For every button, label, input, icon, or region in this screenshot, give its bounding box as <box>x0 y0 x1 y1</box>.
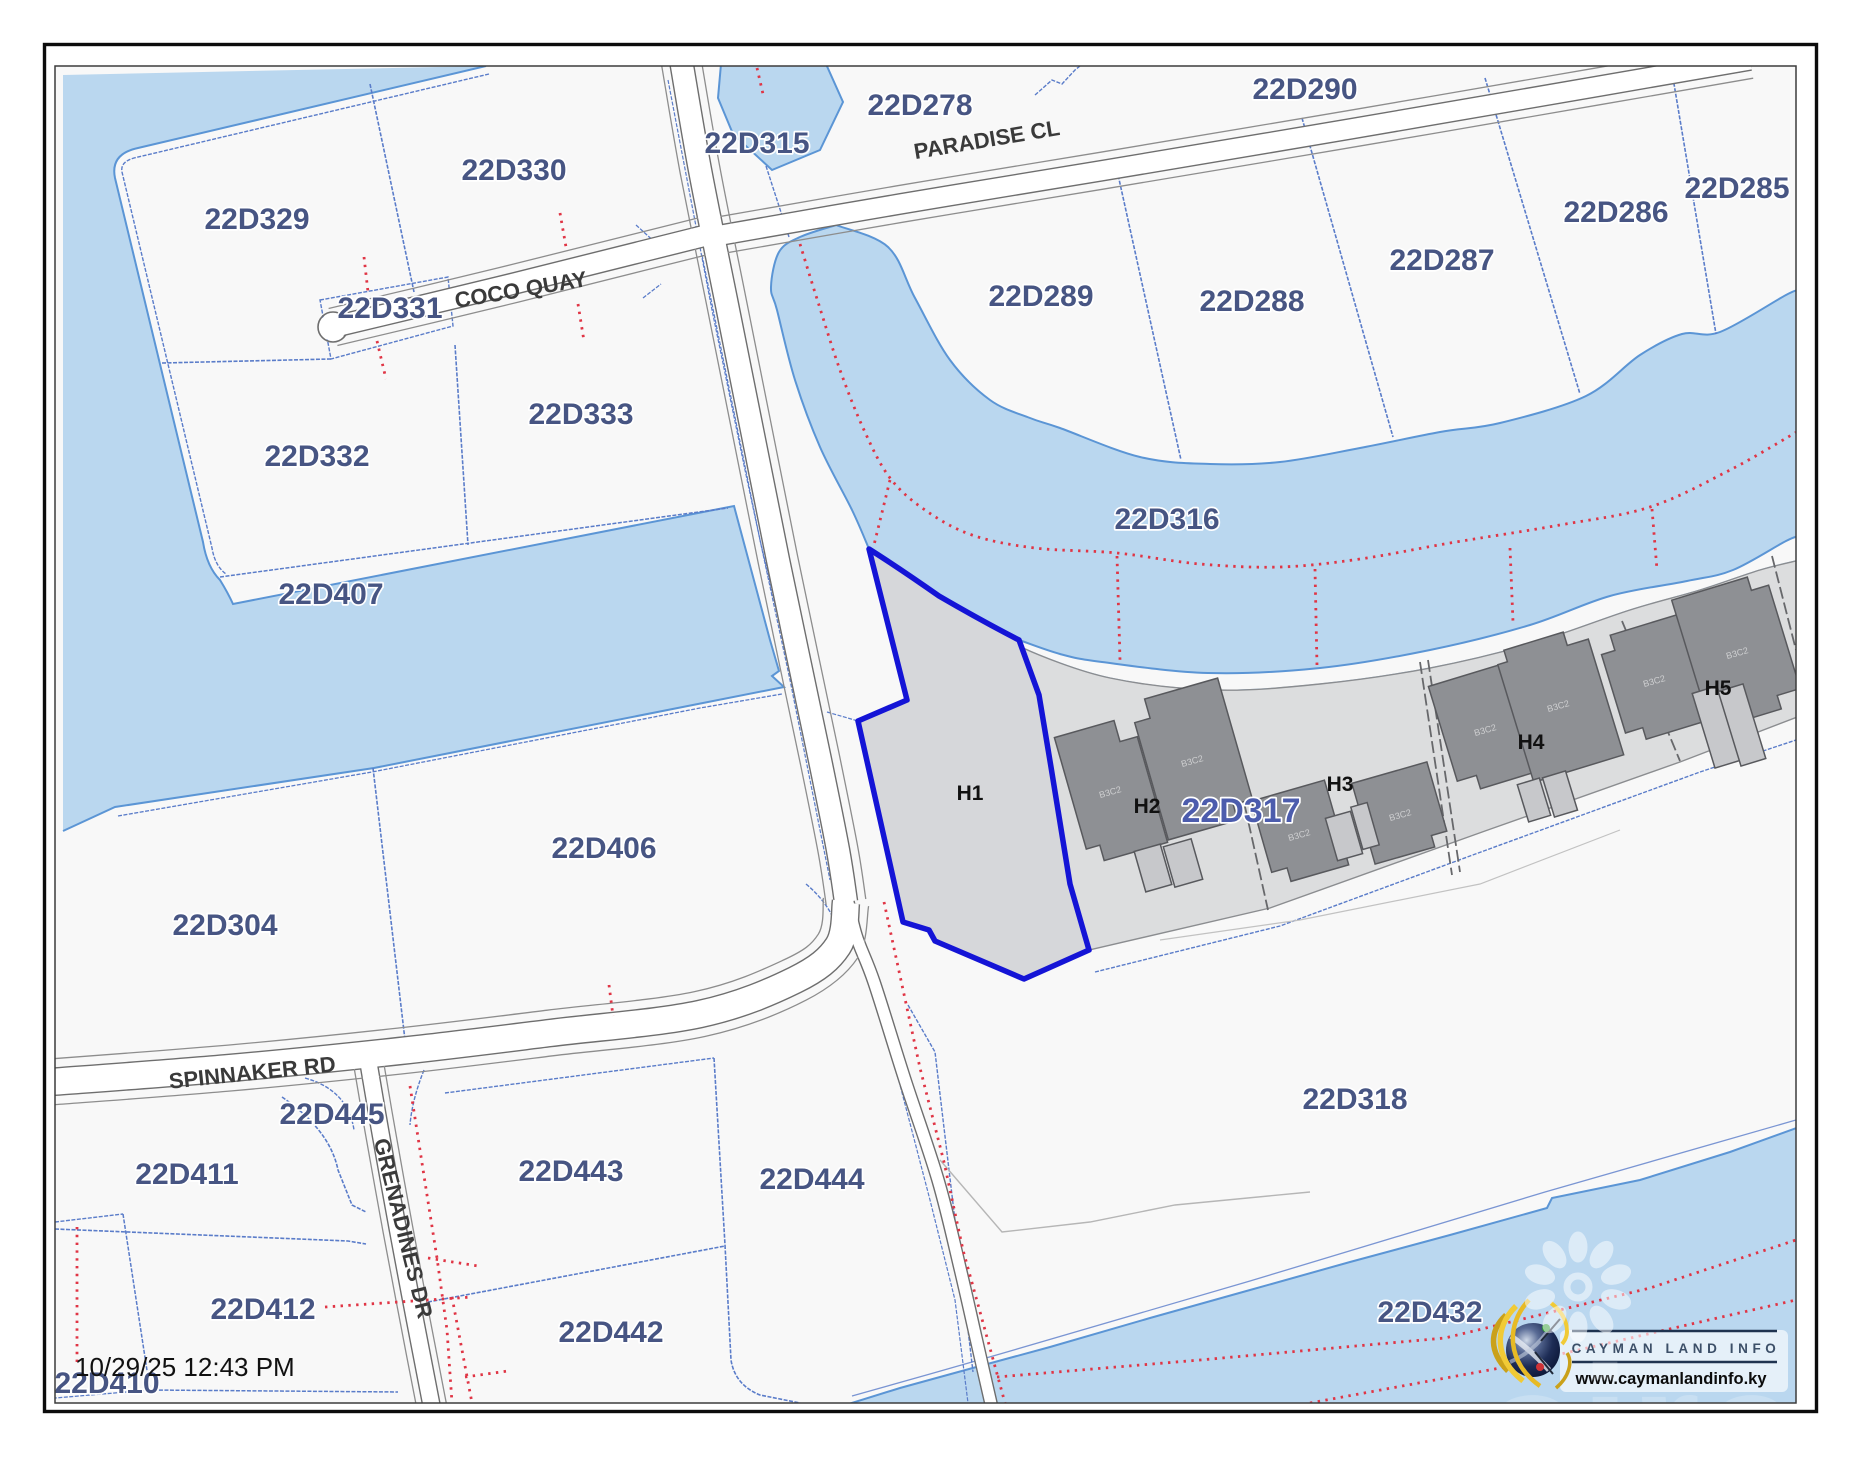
svg-text:22D318: 22D318 <box>1302 1083 1407 1116</box>
svg-text:H3: H3 <box>1327 773 1354 796</box>
svg-text:22D286: 22D286 <box>1563 196 1668 229</box>
svg-text:22D285: 22D285 <box>1684 172 1789 205</box>
svg-text:22D278: 22D278 <box>867 89 972 122</box>
svg-text:22D330: 22D330 <box>461 154 566 187</box>
svg-text:H4: H4 <box>1518 731 1545 754</box>
svg-text:22D287: 22D287 <box>1389 244 1494 277</box>
svg-text:22D444: 22D444 <box>759 1163 864 1196</box>
svg-text:22D442: 22D442 <box>558 1316 663 1349</box>
svg-text:22D288: 22D288 <box>1199 285 1304 318</box>
svg-text:22D445: 22D445 <box>279 1098 384 1131</box>
svg-text:22D329: 22D329 <box>204 203 309 236</box>
svg-text:22D411: 22D411 <box>135 1158 238 1191</box>
svg-text:22D432: 22D432 <box>1377 1296 1482 1329</box>
svg-text:22D412: 22D412 <box>210 1293 315 1326</box>
svg-text:H2: H2 <box>1134 795 1161 818</box>
svg-text:10/29/25 12:43 PM: 10/29/25 12:43 PM <box>75 1352 295 1382</box>
svg-text:H1: H1 <box>957 782 984 805</box>
svg-text:22D443: 22D443 <box>518 1155 623 1188</box>
svg-text:22D317: 22D317 <box>1181 792 1300 830</box>
svg-text:H5: H5 <box>1705 677 1732 700</box>
svg-text:22D333: 22D333 <box>528 398 633 431</box>
svg-text:22D407: 22D407 <box>278 578 383 611</box>
svg-text:22D289: 22D289 <box>988 280 1093 313</box>
svg-text:22D316: 22D316 <box>1114 503 1219 536</box>
svg-text:22D331: 22D331 <box>337 292 442 325</box>
svg-text:22D406: 22D406 <box>551 832 656 865</box>
svg-text:22D332: 22D332 <box>264 440 369 473</box>
svg-text:22D290: 22D290 <box>1252 73 1357 106</box>
svg-text:cireba: cireba <box>1480 1330 1860 1458</box>
svg-text:22D304: 22D304 <box>172 909 277 942</box>
svg-text:22D315: 22D315 <box>704 127 809 160</box>
